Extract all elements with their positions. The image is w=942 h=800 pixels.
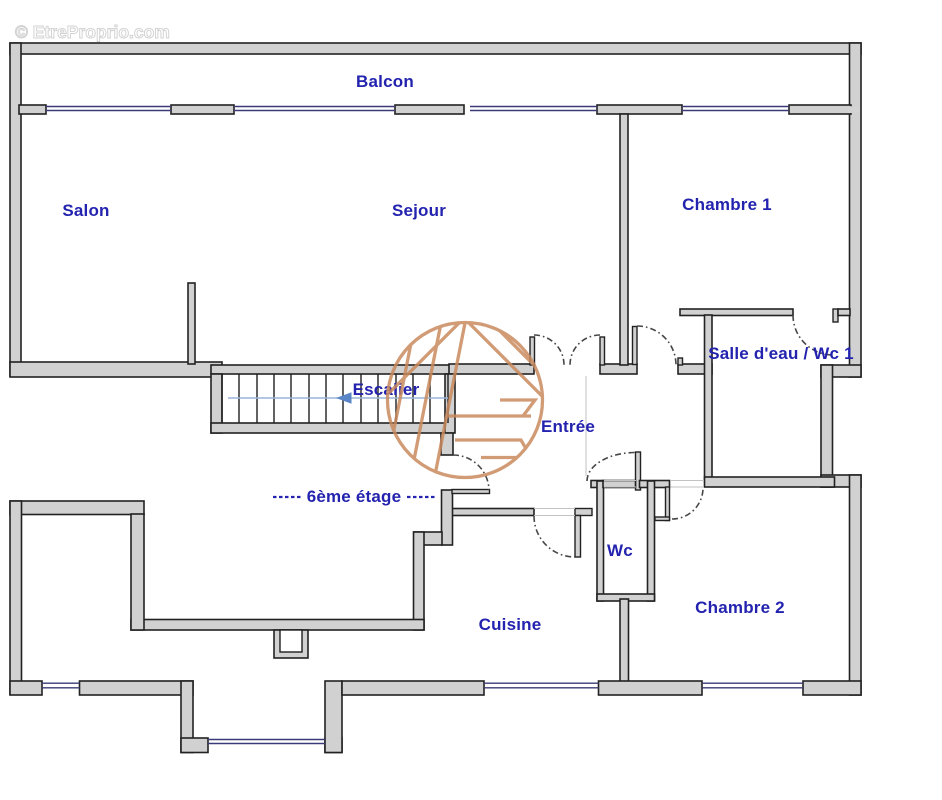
svg-text:Sejour: Sejour [392, 201, 446, 220]
svg-text:Wc: Wc [607, 541, 633, 560]
svg-text:Chambre 2: Chambre 2 [695, 598, 785, 617]
svg-text:Salon: Salon [62, 201, 109, 220]
svg-text:Chambre 1: Chambre 1 [682, 195, 772, 214]
svg-text:Cuisine: Cuisine [479, 615, 542, 634]
svg-text:Entrée: Entrée [541, 417, 595, 436]
svg-text:6ème étage: 6ème étage [307, 487, 402, 506]
svg-text:Balcon: Balcon [356, 72, 414, 91]
svg-text:© EtreProprio.com: © EtreProprio.com [15, 22, 170, 42]
svg-text:Salle d'eau / Wc 1: Salle d'eau / Wc 1 [708, 344, 854, 363]
